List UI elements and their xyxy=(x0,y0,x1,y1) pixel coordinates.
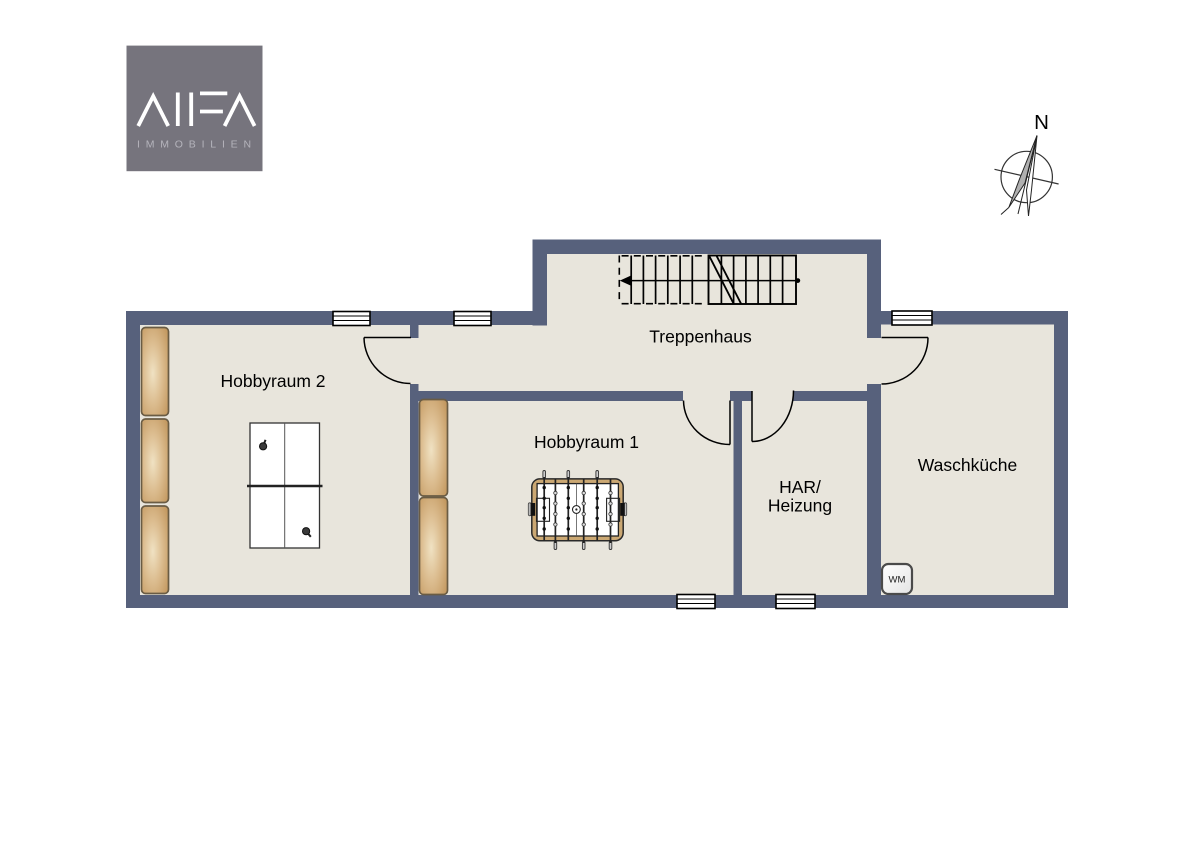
svg-text:Heizung: Heizung xyxy=(768,496,832,516)
svg-text:Waschküche: Waschküche xyxy=(918,455,1018,475)
svg-text:HAR/: HAR/ xyxy=(779,477,821,497)
svg-text:Hobbyraum 1: Hobbyraum 1 xyxy=(534,432,639,452)
svg-text:N: N xyxy=(1034,111,1049,134)
svg-text:WM: WM xyxy=(889,575,906,586)
svg-text:Treppenhaus: Treppenhaus xyxy=(649,327,752,347)
svg-text:Hobbyraum 2: Hobbyraum 2 xyxy=(220,371,325,391)
svg-text:IMMOBILIEN: IMMOBILIEN xyxy=(137,139,257,151)
